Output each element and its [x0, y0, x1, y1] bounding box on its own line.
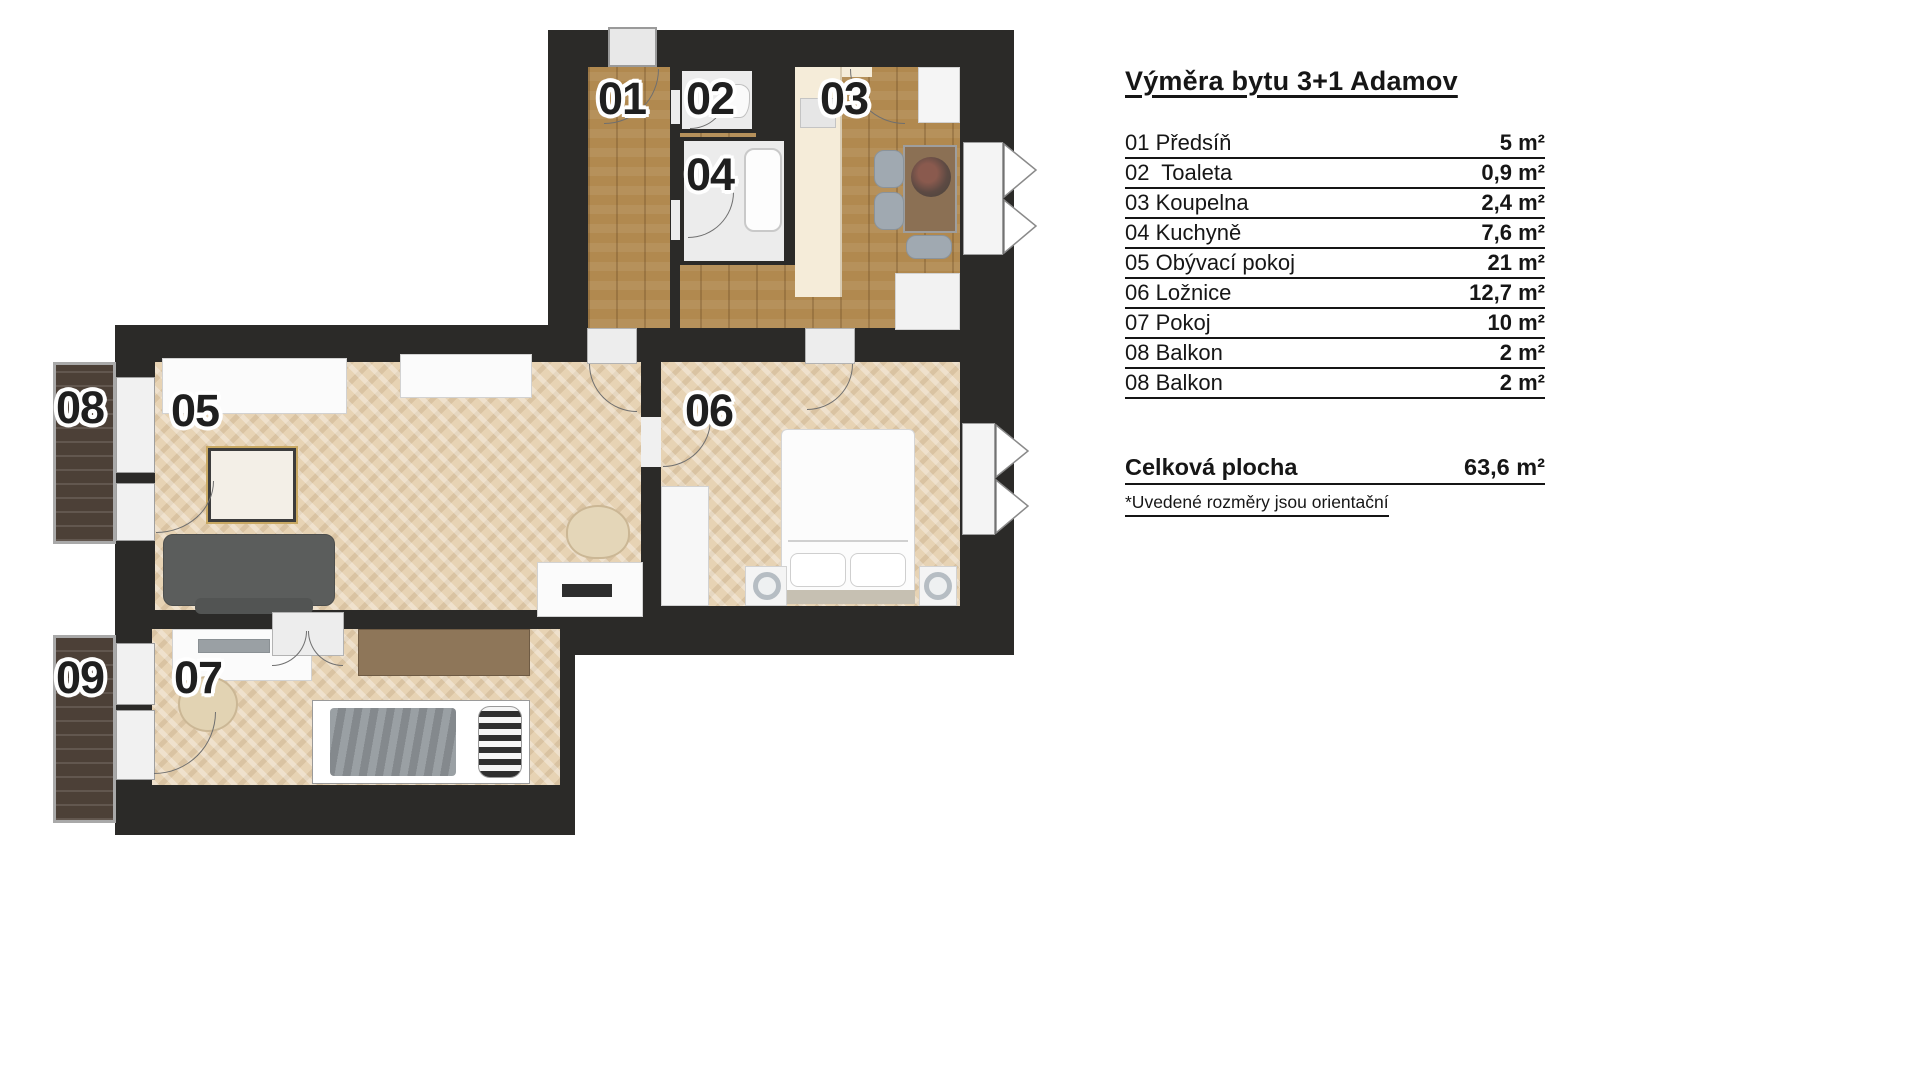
legend-title: Výměra bytu 3+1 Adamov: [1125, 66, 1545, 97]
legend-row-label: 06 Ložnice: [1125, 280, 1231, 306]
legend-row: 04 Kuchyně 7,6 m²: [1125, 219, 1545, 249]
legend-row-label: 08 Balkon: [1125, 340, 1223, 366]
table-plant: [911, 157, 951, 197]
legend-row-value: 5 m²: [1500, 130, 1545, 156]
legend-total-value: 63,6 m²: [1464, 454, 1545, 481]
legend-panel: Výměra bytu 3+1 Adamov 01 Předsíň 5 m² 0…: [1125, 66, 1545, 517]
room-label-06: 06: [685, 388, 733, 433]
legend-row: 02 Toaleta 0,9 m²: [1125, 159, 1545, 189]
floorplan-page: 01 02 03 04 05 06 07 08 09 Výměra bytu 3…: [0, 0, 1920, 1080]
legend-row-value: 0,9 m²: [1481, 160, 1545, 186]
window-balcony09-upper: [116, 643, 155, 705]
entrance-door: [608, 27, 657, 67]
dining-chair-2: [874, 192, 904, 230]
legend-row-label: 05 Obývací pokoj: [1125, 250, 1295, 276]
coffee-table: [208, 448, 296, 522]
legend-row: 06 Ložnice 12,7 m²: [1125, 279, 1545, 309]
kitchen-bay-window: [963, 142, 1003, 255]
legend-row-value: 7,6 m²: [1481, 220, 1545, 246]
bedroom-bay-window: [962, 423, 995, 535]
bedroom-bay-casement-icon: [995, 423, 1031, 535]
room-label-05: 05: [171, 388, 219, 433]
door-gap-hall-02: [671, 90, 680, 124]
wall-stub-right-of-02: [756, 67, 796, 137]
room-label-04: 04: [686, 152, 734, 197]
room07-striped-pillow: [478, 706, 522, 778]
sofa: [163, 534, 335, 606]
laptop: [562, 584, 612, 597]
room-label-02: 02: [686, 76, 734, 121]
legend-row-value: 2 m²: [1500, 340, 1545, 366]
window-balcony09-lower: [116, 710, 155, 780]
kitchen-bay-casement-icon: [1003, 142, 1039, 255]
door-bedroom-left: [641, 417, 661, 467]
room-label-07: 07: [174, 655, 222, 700]
legend-row-value: 2 m²: [1500, 370, 1545, 396]
legend-row: 05 Obývací pokoj 21 m²: [1125, 249, 1545, 279]
room-label-08: 08: [56, 385, 104, 430]
bed-pillow-left: [790, 553, 846, 587]
legend-row-label: 04 Kuchyně: [1125, 220, 1241, 246]
window-balcony08-upper: [116, 377, 155, 473]
legend-row: 08 Balkon 2 m²: [1125, 369, 1545, 399]
lamp-right: [924, 572, 952, 600]
bed-pillow-right: [850, 553, 906, 587]
legend-total-label: Celková plocha: [1125, 454, 1297, 481]
room-label-03: 03: [820, 76, 868, 121]
door-corridor-bedroom: [805, 328, 855, 364]
legend-row-label: 03 Koupelna: [1125, 190, 1249, 216]
kitchen-entry-white: [918, 67, 960, 123]
legend-row-value: 12,7 m²: [1469, 280, 1545, 306]
living-cupboard-right: [400, 354, 532, 398]
dining-chair-3: [906, 235, 952, 259]
room07-wardrobe: [358, 629, 530, 676]
dining-chair-1: [874, 150, 904, 188]
legend-row-label: 08 Balkon: [1125, 370, 1223, 396]
lamp-left: [753, 572, 781, 600]
legend-row: 03 Koupelna 2,4 m²: [1125, 189, 1545, 219]
legend-note: *Uvedené rozměry jsou orientační: [1125, 492, 1389, 517]
legend-row-value: 21 m²: [1488, 250, 1545, 276]
legend-row: 01 Předsíň 5 m²: [1125, 129, 1545, 159]
legend-row-value: 2,4 m²: [1481, 190, 1545, 216]
room-label-09: 09: [56, 655, 104, 700]
kitchen-cabinet-white: [895, 273, 960, 330]
legend-total-row: Celková plocha 63,6 m²: [1125, 449, 1545, 485]
legend-row: 07 Pokoj 10 m²: [1125, 309, 1545, 339]
bed-fold-line: [788, 540, 908, 542]
legend-row-value: 10 m²: [1488, 310, 1545, 336]
bathtub-fixture: [744, 148, 782, 232]
window-balcony08-lower: [116, 483, 155, 541]
legend-row-label: 02 Toaleta: [1125, 160, 1232, 186]
legend-row-label: 07 Pokoj: [1125, 310, 1211, 336]
room07-desk-shelf: [198, 639, 270, 653]
bed-base: [781, 590, 915, 604]
living-desk-chair: [566, 505, 630, 559]
legend-row: 08 Balkon 2 m²: [1125, 339, 1545, 369]
room07-blanket: [330, 708, 456, 776]
legend-row-label: 01 Předsíň: [1125, 130, 1231, 156]
door-corridor-living: [587, 328, 637, 364]
room-label-01: 01: [598, 76, 646, 121]
bedroom-wardrobe: [661, 486, 709, 606]
door-gap-hall-04: [671, 200, 680, 240]
wall-stub-right-of-04: [788, 137, 795, 265]
